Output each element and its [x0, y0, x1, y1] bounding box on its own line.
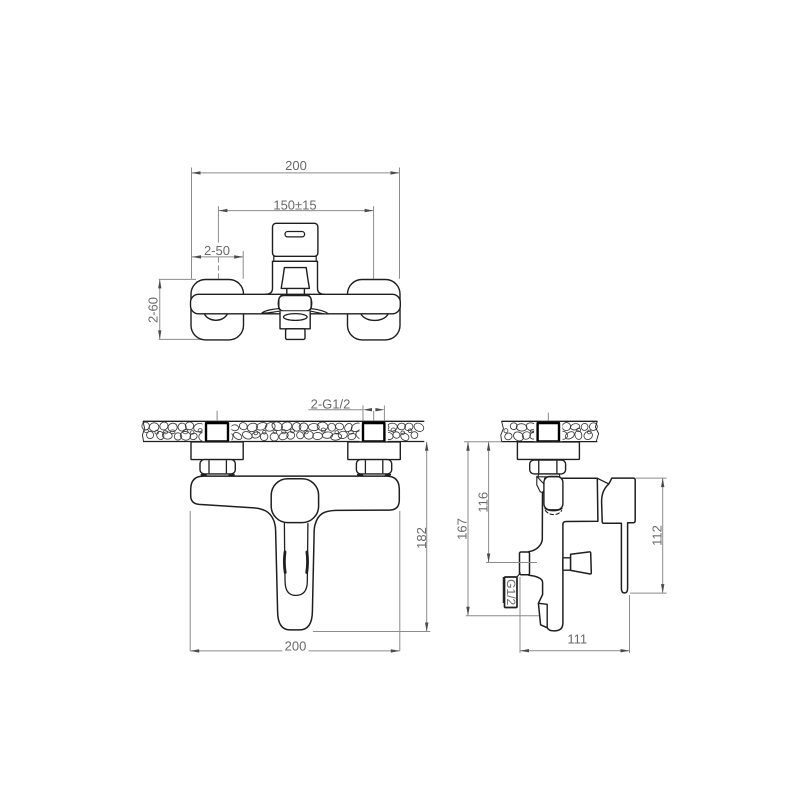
svg-text:200: 200	[285, 158, 307, 173]
svg-text:112: 112	[649, 525, 664, 546]
svg-text:150±15: 150±15	[273, 197, 316, 212]
svg-text:2-G1/2: 2-G1/2	[311, 396, 351, 411]
svg-text:116: 116	[475, 492, 490, 513]
svg-text:111: 111	[567, 631, 587, 646]
svg-text:182: 182	[414, 527, 429, 549]
svg-text:G1/2: G1/2	[504, 579, 518, 605]
svg-text:200: 200	[285, 639, 307, 654]
svg-text:2-60: 2-60	[146, 297, 161, 323]
svg-text:167: 167	[455, 518, 470, 540]
svg-text:2-50: 2-50	[204, 243, 230, 258]
